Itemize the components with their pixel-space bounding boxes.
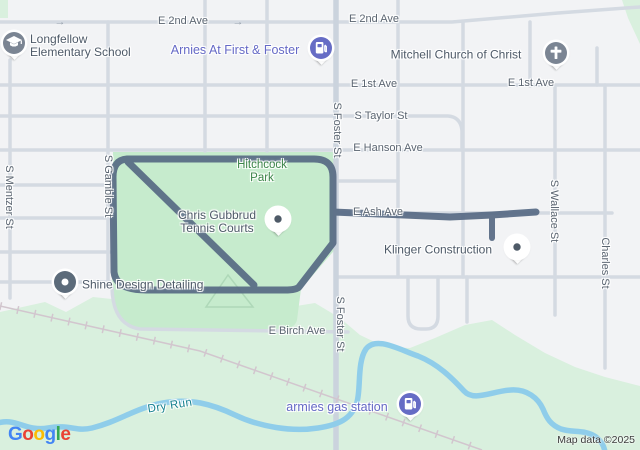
street-label: Charles St xyxy=(599,237,611,288)
hitchcock-park-label: HitchcockPark xyxy=(237,159,287,185)
donut-icon xyxy=(54,271,76,293)
armies-gas-station-label[interactable]: armies gas station xyxy=(286,401,387,413)
dot-icon xyxy=(506,236,528,258)
labels-layer: E 2nd AveE 2nd AveE 1st AveE 1st AveS Ta… xyxy=(0,0,640,450)
google-logo-letter: o xyxy=(33,424,44,445)
street-label: S Gamble St xyxy=(102,155,114,217)
street-label: E 2nd Ave xyxy=(158,15,208,27)
longfellow-elementary-school-label[interactable]: LongfellowElementary School xyxy=(30,33,131,59)
arnies-at-first-and-foster-label[interactable]: Arnies At First & Foster xyxy=(171,44,300,56)
google-logo-letter: e xyxy=(60,424,70,445)
street-label: S Mentzer St xyxy=(3,165,15,229)
street-label: S Foster St xyxy=(334,296,346,351)
klinger-construction-label[interactable]: Klinger Construction xyxy=(384,244,492,257)
street-label: S Wallace St xyxy=(548,180,560,243)
street-label: E 1st Ave xyxy=(508,77,554,89)
school-icon xyxy=(3,32,25,54)
street-label: E Birch Ave xyxy=(269,325,326,337)
google-logo-letter: o xyxy=(22,424,33,445)
street-label: E Hanson Ave xyxy=(353,142,423,154)
oneway-arrow-icon: → xyxy=(233,16,244,28)
chris-gubbrud-tennis-courts-label[interactable]: Chris GubbrudTennis Courts xyxy=(178,209,256,235)
shine-design-detailing-label[interactable]: Shine Design Detailing xyxy=(82,279,203,292)
street-label: S Foster St xyxy=(331,102,343,157)
street-label: E 1st Ave xyxy=(351,78,397,90)
google-logo-letter: g xyxy=(45,424,56,445)
fuel-icon xyxy=(310,37,332,59)
street-label: E 2nd Ave xyxy=(349,13,399,25)
google-logo-letter: G xyxy=(8,424,22,445)
map-attribution: Map data ©2025 xyxy=(557,434,635,446)
dot-icon xyxy=(267,208,289,230)
street-label: S Taylor St xyxy=(355,110,408,122)
church-icon xyxy=(545,42,567,64)
oneway-arrow-icon: → xyxy=(55,16,66,28)
google-logo[interactable]: Google xyxy=(8,424,70,446)
mitchell-church-of-christ-label[interactable]: Mitchell Church of Christ xyxy=(391,49,522,62)
street-label: E Ash Ave xyxy=(353,206,403,218)
map-canvas[interactable]: E 2nd AveE 2nd AveE 1st AveE 1st AveS Ta… xyxy=(0,0,640,450)
dry-run-label: Dry Run xyxy=(147,397,193,416)
fuel-icon xyxy=(399,393,421,415)
